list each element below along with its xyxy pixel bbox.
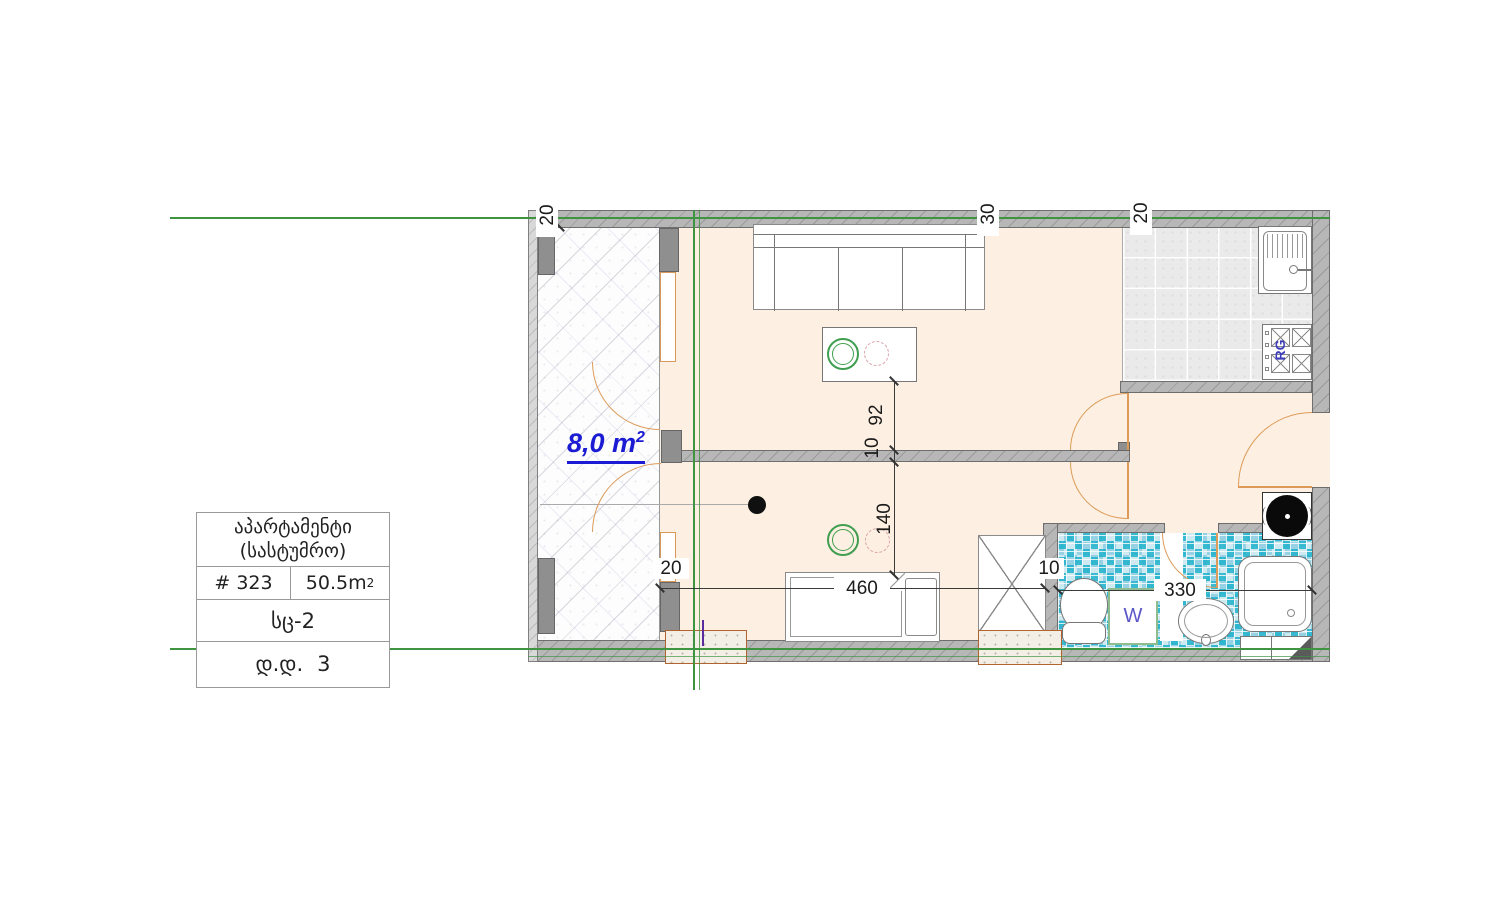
bathtub-inner (1244, 562, 1306, 626)
kitchen-faucet-icon (1289, 265, 1298, 274)
axis-line-horizontal (528, 656, 1330, 657)
wall-right-upper (1312, 210, 1330, 413)
column-point (748, 496, 766, 514)
title-block-floor-row: დ.დ. 3 (197, 642, 389, 685)
stove-knob (1265, 331, 1269, 335)
bedroom-hall-door-leaf (1127, 462, 1129, 519)
kitchen-faucet-stem (1298, 269, 1313, 271)
bathroom-sink-inner (1184, 604, 1228, 638)
wall-stub (538, 558, 555, 634)
heater-arc-mark (1262, 507, 1270, 525)
washing-machine-label: W (1124, 605, 1143, 628)
dimension-label: 330 (1154, 579, 1206, 601)
dimension-label: 20 (653, 558, 689, 579)
unit-area-cell: 50.5m2 (291, 567, 389, 599)
axis-line-vertical (693, 210, 695, 690)
dimension-label: 20 (1130, 191, 1152, 235)
dimension-label: 140 (874, 497, 894, 541)
dimension-label: 10 (1034, 558, 1064, 579)
toilet-base (1062, 622, 1106, 644)
plant-icon (832, 343, 854, 365)
heater-arc-mark (1304, 507, 1312, 525)
unit-area: 50.5m (306, 572, 367, 594)
washing-machine: W (1108, 588, 1158, 645)
block-code: სც-2 (271, 609, 315, 633)
apartment-subtitle: (სასტუმრო) (240, 540, 347, 564)
bathtub-drain-icon (1287, 609, 1295, 617)
bathtub (1238, 556, 1312, 632)
living-hall-door-leaf (1127, 393, 1129, 450)
sofa-seat-divider (838, 247, 839, 311)
stove-knob (1265, 343, 1269, 347)
entrance-door-leaf (1238, 486, 1312, 488)
sofa-seat-divider (902, 247, 903, 311)
wardrobe (978, 535, 1046, 633)
water-heater (1262, 492, 1312, 540)
kitchen-sink-drainboard (1267, 234, 1305, 258)
stove-knob (1265, 355, 1269, 359)
floor-value: 3 (317, 652, 330, 676)
stove-knob (1265, 367, 1269, 371)
wall-left-glazing (528, 210, 538, 662)
title-block-number-row: # 323 50.5m2 (197, 567, 389, 600)
stove-gas-label: RG (1270, 328, 1290, 372)
sofa-armrest-line (774, 234, 775, 311)
kitchen-sink-unit (1258, 226, 1312, 294)
sofa-back-line (754, 234, 984, 235)
concrete-pier (665, 630, 747, 664)
burner-icon (1292, 328, 1311, 347)
dimension-label: 460 (834, 577, 890, 599)
decor-circle-icon (864, 341, 889, 366)
plant-icon (832, 529, 854, 551)
unit-area-sup: 2 (367, 576, 375, 590)
wall-bathroom-top-left (1043, 523, 1165, 533)
balcony-window-frame (660, 272, 676, 362)
axis-line-horizontal (170, 217, 1330, 219)
wall-right-lower (1312, 487, 1330, 662)
balcony-area-value: 8,0 m (567, 428, 636, 458)
burner-icon (1292, 354, 1311, 373)
sofa-back-line (754, 247, 984, 248)
dimension-label: 10 (862, 426, 882, 470)
dimension-label: 20 (536, 193, 558, 237)
sofa (753, 224, 985, 310)
floor-label: დ.დ. (255, 652, 303, 676)
title-block: აპარტამენტი (სასტუმრო) # 323 50.5m2 სც-2… (196, 512, 390, 688)
balcony-area-sup: 2 (636, 429, 645, 446)
title-block-code-row: სც-2 (197, 600, 389, 642)
dimension-label: 30 (977, 192, 999, 236)
wall-kitchen-bottom (1120, 381, 1312, 393)
survey-tick (702, 620, 704, 646)
water-heater-center-dot (1285, 514, 1290, 519)
entrance-threshold (1312, 413, 1330, 487)
wall-stub (659, 228, 679, 272)
axis-line-vertical (699, 210, 700, 690)
sofa-armrest-line (965, 234, 966, 311)
dimension-chain-line (894, 381, 895, 575)
wall-stub (661, 430, 682, 463)
title-block-name: აპარტამენტი (სასტუმრო) (197, 513, 389, 567)
unit-number: # 323 (214, 572, 272, 594)
floor-plan-canvas: W RG (0, 0, 1500, 900)
balcony-area-label: 8,0 m2 (567, 428, 645, 464)
bed-pillow (905, 578, 937, 636)
wall-partition (678, 450, 1130, 462)
unit-number-cell: # 323 (197, 567, 291, 599)
apartment-title: აპარტამენტი (234, 516, 352, 540)
